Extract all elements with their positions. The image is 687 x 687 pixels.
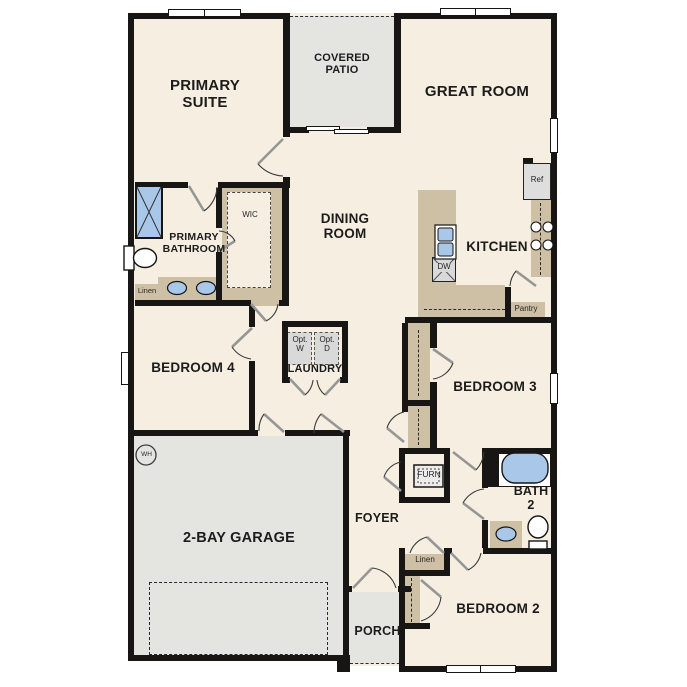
label-pantry: Pantry [508, 305, 544, 314]
wall [394, 13, 401, 133]
room-label-foyer: FOYER [350, 511, 404, 525]
wall [282, 182, 289, 306]
wall [343, 436, 349, 668]
wall [216, 188, 222, 228]
wall [402, 497, 450, 503]
room-label-bedroom2: BEDROOM 2 [444, 601, 552, 616]
kitchen-counter-bottom [418, 285, 505, 317]
wall [488, 454, 498, 487]
room-label-primary-suite: PRIMARY SUITE [150, 78, 260, 112]
sliding-door [334, 129, 369, 134]
room-label-bedroom3: BEDROOM 3 [441, 379, 549, 394]
wall [128, 655, 350, 661]
wall [444, 454, 450, 497]
window [440, 8, 476, 16]
window [475, 8, 511, 16]
room-label-porch: PORCH [351, 624, 404, 638]
wall [402, 570, 450, 576]
wall [285, 430, 350, 436]
wall [444, 548, 450, 576]
label-opt-washer: Opt. W [289, 336, 311, 354]
wall [135, 300, 251, 306]
wall [216, 252, 222, 300]
wall [282, 321, 348, 327]
counter-overhang-dashed [424, 309, 505, 310]
window [168, 9, 205, 17]
room-label-covered-patio: COVERED PATIO [303, 52, 381, 77]
wall [551, 13, 557, 672]
room-label-bedroom4: BEDROOM 4 [139, 360, 247, 375]
room-label-bath2: BATH 2 [509, 484, 553, 512]
wall [399, 548, 405, 672]
room-label-laundry: LAUNDRY [282, 363, 348, 375]
wall [283, 13, 290, 137]
label-opt-dryer: Opt. D [316, 336, 338, 354]
wall [218, 182, 290, 188]
window [204, 9, 241, 17]
wall [402, 323, 408, 412]
garage-door-dashed [149, 582, 328, 655]
room-label-dining-room: DINING ROOM [303, 211, 387, 241]
floor-plan-canvas: PRIMARY SUITE COVERED PATIO GREAT ROOM D… [0, 0, 687, 687]
shower [135, 185, 163, 239]
wall [483, 548, 557, 554]
wall [430, 382, 437, 448]
window [550, 118, 558, 153]
wall [402, 448, 450, 454]
label-linen-primary: Linen [135, 287, 159, 295]
hall-closet [408, 406, 430, 448]
window [121, 352, 129, 385]
counter-right-dashed [540, 203, 541, 275]
room-label-great-room: GREAT ROOM [418, 84, 536, 101]
bedroom3-closet-rod [418, 330, 419, 396]
label-dw: DW [434, 263, 454, 272]
bedroom3-closet [408, 323, 430, 400]
bedroom2-closet [405, 576, 420, 623]
wall [399, 448, 405, 503]
room-label-kitchen: KITCHEN [458, 239, 536, 254]
wall [482, 448, 557, 454]
label-ref: Ref [527, 176, 547, 185]
hall-closet-rod [418, 409, 419, 445]
patio-edge-dashed [290, 16, 394, 17]
porch-edge-dashed [350, 663, 405, 664]
label-furnace: FURN [416, 470, 442, 479]
window [446, 665, 481, 673]
label-linen-hall: Linen [406, 556, 444, 565]
wall [482, 520, 488, 548]
bedroom2-closet-rod [411, 578, 412, 622]
wall [430, 323, 437, 348]
wall [482, 454, 488, 488]
window [480, 665, 516, 673]
bath2-sink-counter [490, 521, 522, 548]
wall [249, 306, 255, 327]
wall [128, 13, 134, 661]
room-label-primary-bathroom: PRIMARY BATHROOM [152, 232, 236, 256]
window [550, 373, 558, 404]
wall [128, 430, 258, 436]
wall [249, 361, 255, 430]
room-label-garage: 2-BAY GARAGE [183, 530, 295, 546]
vanity-counter [158, 277, 216, 300]
label-water-heater: WH [139, 451, 154, 458]
wall [402, 623, 430, 629]
wall [405, 317, 557, 323]
label-wic: WIC [234, 211, 266, 220]
